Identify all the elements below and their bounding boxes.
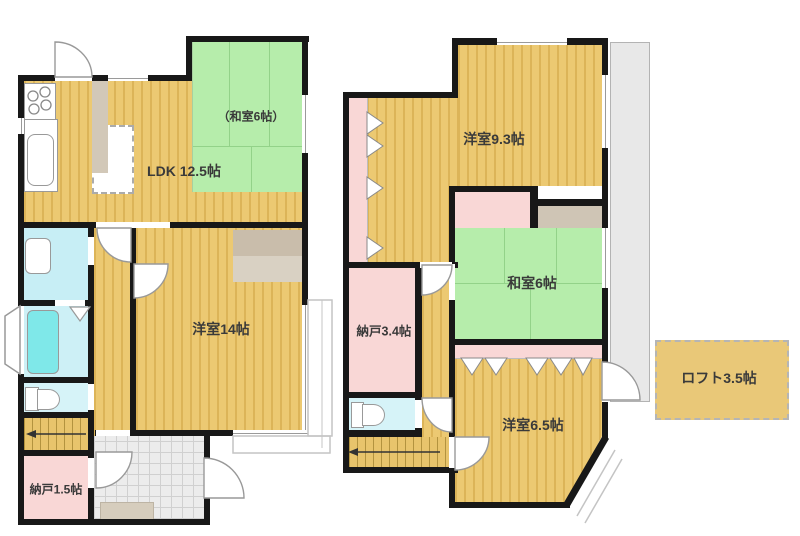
door-opening — [449, 264, 455, 300]
kitchen-counter — [92, 79, 108, 173]
room-label-yoshitsu93: 洋室9.3帖 — [463, 129, 524, 149]
wall-segment — [204, 436, 210, 525]
washbasin-icon — [25, 238, 51, 274]
door-opening — [96, 222, 170, 228]
window — [18, 118, 24, 134]
loft-label: ロフト3.5帖 — [681, 368, 756, 388]
window — [302, 305, 308, 430]
door-opening — [415, 400, 422, 428]
tatami-line — [193, 146, 303, 147]
stove-icon — [24, 83, 56, 121]
window — [233, 430, 308, 436]
room-label-ldk: LDK 12.5帖 — [147, 161, 221, 181]
kitchen-sink-icon — [27, 134, 54, 186]
door-opening — [96, 430, 130, 436]
tatami-line — [229, 42, 230, 146]
floorplan-canvas: （和室6帖） LDK 12.5帖 洋室14帖 納戸1.5帖 洋室9.3帖 和室6… — [0, 0, 800, 536]
wall-segment — [343, 392, 422, 398]
door-opening — [449, 437, 455, 468]
wall-segment — [18, 412, 94, 418]
wall-segment — [536, 199, 608, 206]
room-label-nando-2f: 納戸3.4帖 — [357, 321, 412, 340]
hall-2f — [422, 268, 449, 437]
toilet-icon — [362, 404, 385, 426]
closet-strip — [455, 345, 602, 359]
closet — [538, 206, 602, 228]
closet — [233, 256, 302, 282]
toilet-icon — [37, 389, 60, 410]
porch-line — [308, 300, 332, 436]
bathtub-icon — [27, 310, 59, 374]
door-opening — [88, 384, 94, 410]
door-arc — [55, 42, 92, 77]
wall-segment — [18, 519, 210, 525]
door-opening — [420, 262, 452, 268]
window — [108, 75, 148, 81]
room-label-yoshitsu14: 洋室14帖 — [192, 319, 250, 339]
door-opening — [55, 300, 85, 306]
wall-segment — [449, 186, 536, 192]
room-label-yoshitsu65: 洋室6.5帖 — [502, 415, 563, 435]
door-opening — [88, 458, 94, 488]
room-label-washitsu-2f: 和室6帖 — [507, 273, 557, 293]
wall-segment — [343, 92, 349, 473]
door-arc — [204, 458, 244, 498]
wall-segment — [343, 430, 422, 437]
wall-segment — [186, 36, 192, 81]
closet-strip — [349, 98, 368, 262]
wall-segment — [530, 186, 538, 228]
bay-window-opening — [18, 306, 24, 374]
window — [302, 95, 308, 153]
wall-segment — [18, 377, 94, 383]
stairs-1f — [24, 417, 88, 450]
room-label-nando-1f: 納戸1.5帖 — [30, 481, 83, 498]
door-opening — [55, 75, 92, 81]
closet — [233, 230, 302, 256]
tatami-line — [504, 228, 505, 283]
wall-segment — [452, 502, 570, 508]
porch-line — [585, 459, 622, 523]
wall-segment — [452, 38, 458, 98]
room-label-washitsu-1f: （和室6帖） — [218, 108, 285, 125]
closet — [455, 192, 530, 228]
wall-segment — [18, 450, 94, 456]
wall-segment — [449, 339, 608, 345]
stairs-2f — [349, 437, 452, 467]
window — [497, 38, 567, 45]
wall-segment — [186, 36, 309, 42]
tatami-line — [251, 147, 252, 192]
tatami-line — [269, 42, 270, 146]
balcony — [610, 42, 650, 402]
wall-segment — [449, 345, 455, 508]
wall-segment — [343, 92, 458, 98]
porch-line — [233, 436, 330, 453]
window — [602, 228, 608, 288]
wall-segment — [18, 75, 192, 81]
wall-segment — [343, 467, 458, 473]
hall-1f — [94, 227, 130, 436]
door-opening — [602, 362, 608, 402]
room-yoshitsu93-floor — [458, 45, 602, 186]
wall-segment — [130, 227, 136, 436]
window — [602, 75, 608, 148]
door-opening — [88, 237, 94, 265]
